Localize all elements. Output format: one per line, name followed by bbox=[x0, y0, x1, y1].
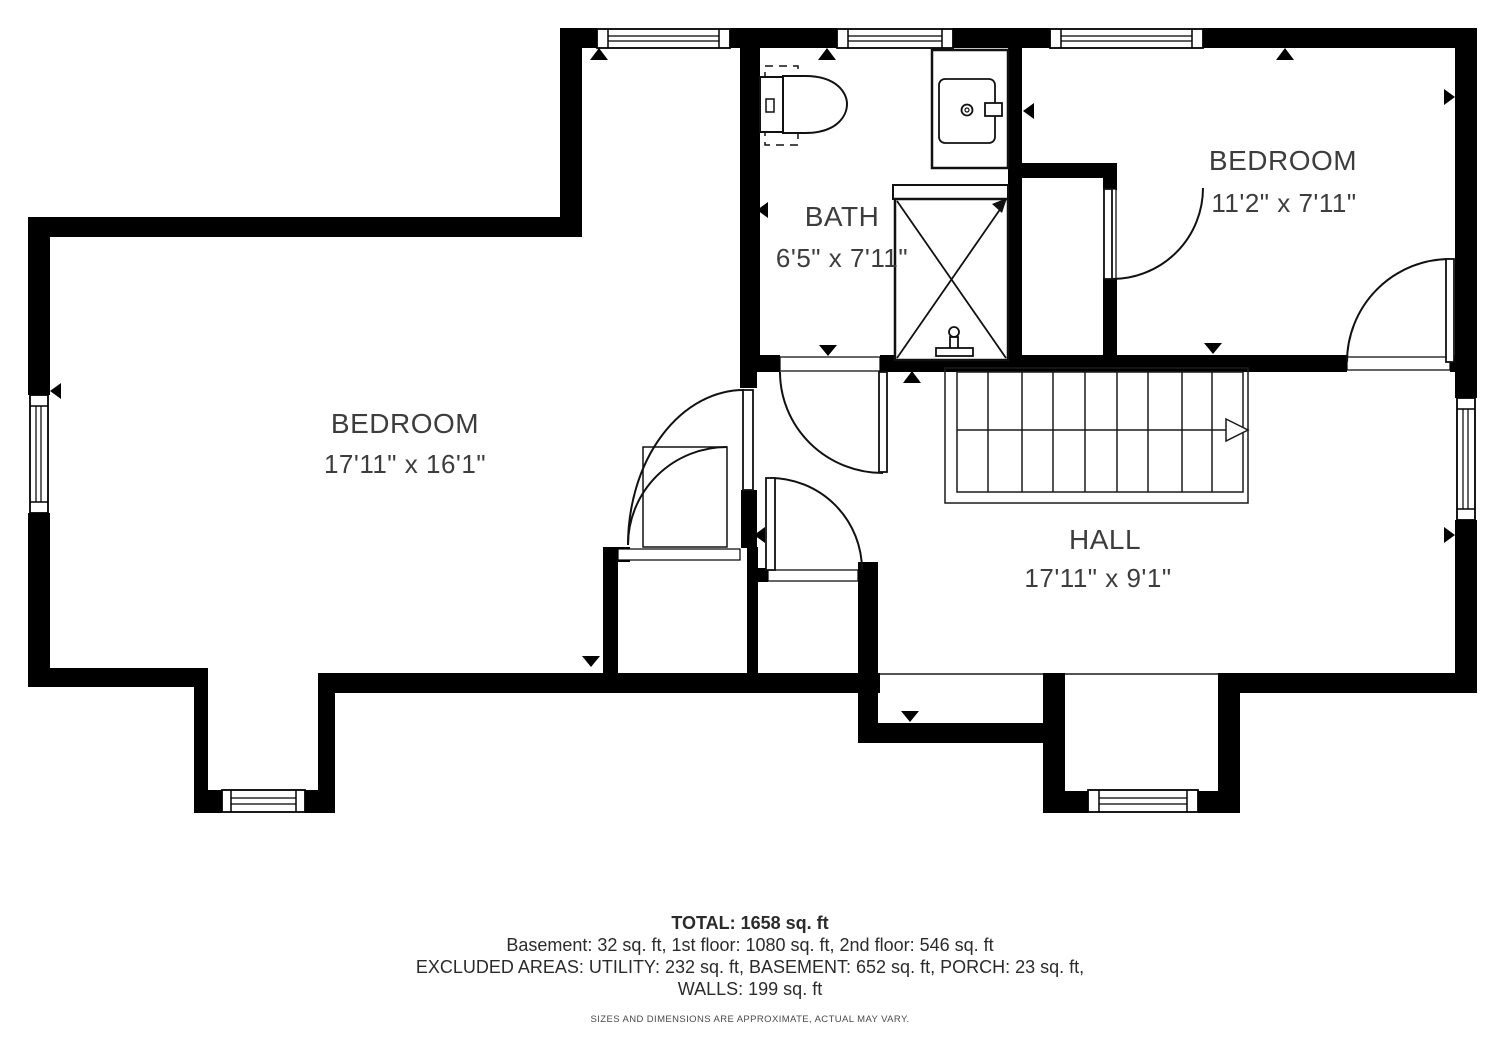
door-opening bbox=[618, 549, 740, 560]
room-label-bedroom-right: BEDROOM bbox=[1209, 147, 1357, 175]
window-icon bbox=[1088, 790, 1198, 812]
marker-up-icon bbox=[903, 371, 921, 383]
wall-segment bbox=[740, 372, 757, 388]
wall-segment bbox=[740, 355, 780, 372]
disclaimer: SIZES AND DIMENSIONS ARE APPROXIMATE, AC… bbox=[0, 1014, 1500, 1025]
summary-floors: Basement: 32 sq. ft, 1st floor: 1080 sq.… bbox=[0, 934, 1500, 956]
wall-segment bbox=[1455, 28, 1477, 398]
summary-total: TOTAL: 1658 sq. ft bbox=[0, 912, 1500, 934]
wall-segment bbox=[28, 217, 50, 395]
marker-down-icon bbox=[819, 345, 837, 356]
wall-segment bbox=[1198, 791, 1240, 813]
door-icon bbox=[780, 372, 887, 473]
wall-segment bbox=[1065, 791, 1088, 813]
wall-segment bbox=[1008, 48, 1022, 355]
staircase-icon bbox=[945, 368, 1248, 503]
window-icon bbox=[1457, 398, 1475, 520]
door-icon bbox=[1347, 259, 1454, 362]
room-dims-hall: 17'11" x 9'1" bbox=[1024, 565, 1171, 591]
wall-segment bbox=[305, 790, 335, 813]
room-label-bath: BATH bbox=[805, 203, 880, 231]
wall-segment bbox=[318, 673, 880, 693]
door-icon bbox=[628, 447, 727, 547]
marker-left-icon bbox=[50, 383, 61, 399]
wall-segment bbox=[1103, 278, 1117, 355]
room-dims-bedroom-right: 11'2" x 7'11" bbox=[1211, 190, 1356, 216]
marker-down-icon bbox=[582, 656, 600, 667]
window-icon bbox=[597, 29, 730, 48]
window-icon bbox=[837, 29, 953, 48]
marker-right-icon bbox=[1444, 89, 1455, 105]
wall-segment bbox=[28, 513, 50, 687]
door-opening bbox=[780, 357, 880, 371]
window-icon bbox=[222, 790, 305, 812]
marker-down-icon bbox=[901, 711, 919, 722]
marker-up-icon bbox=[1276, 48, 1294, 60]
shower-icon bbox=[893, 185, 1008, 360]
floor-plan-page: BEDROOM 17'11" x 16'1" BATH 6'5" x 7'11"… bbox=[0, 0, 1500, 1056]
area-summary: TOTAL: 1658 sq. ft Basement: 32 sq. ft, … bbox=[0, 912, 1500, 1025]
door-icon bbox=[766, 478, 862, 570]
door-opening bbox=[768, 570, 858, 581]
wall-segment bbox=[858, 723, 1065, 743]
wall-segment bbox=[1218, 673, 1477, 693]
room-label-bedroom-left: BEDROOM bbox=[331, 410, 479, 438]
wall-segment bbox=[28, 217, 582, 237]
wall-segment bbox=[1022, 163, 1117, 178]
wall-segment bbox=[1455, 520, 1477, 693]
wall-segment bbox=[194, 668, 208, 813]
wall-segment bbox=[28, 668, 208, 687]
door-opening bbox=[1347, 357, 1450, 370]
wall-segment bbox=[560, 28, 582, 237]
door-icon bbox=[1104, 188, 1203, 279]
marker-right-icon bbox=[1444, 527, 1455, 543]
room-dims-bedroom-left: 17'11" x 16'1" bbox=[324, 451, 486, 477]
window-icon bbox=[1050, 29, 1203, 48]
toilet-icon bbox=[760, 66, 847, 145]
wall-segment bbox=[747, 547, 758, 675]
wall-segment bbox=[1203, 28, 1477, 48]
window-icon bbox=[30, 395, 48, 513]
summary-excluded: EXCLUDED AREAS: UTILITY: 232 sq. ft, BAS… bbox=[0, 956, 1500, 978]
marker-left-icon bbox=[1023, 103, 1034, 119]
wall-segment bbox=[730, 28, 837, 48]
summary-walls: WALLS: 199 sq. ft bbox=[0, 978, 1500, 1000]
marker-up-icon bbox=[818, 48, 836, 60]
wall-segment bbox=[953, 28, 1050, 48]
wall-segment bbox=[858, 562, 878, 743]
wall-segment bbox=[741, 490, 757, 548]
wall-segment bbox=[603, 547, 618, 675]
room-dims-bath: 6'5" x 7'11" bbox=[776, 245, 908, 271]
marker-down-icon bbox=[1204, 343, 1222, 354]
room-label-hall: HALL bbox=[1069, 526, 1141, 554]
door-icon bbox=[628, 390, 753, 545]
marker-up-icon bbox=[590, 48, 608, 60]
stairs-direction-arrow bbox=[1226, 419, 1248, 441]
vanity-sink-icon bbox=[932, 50, 1008, 168]
